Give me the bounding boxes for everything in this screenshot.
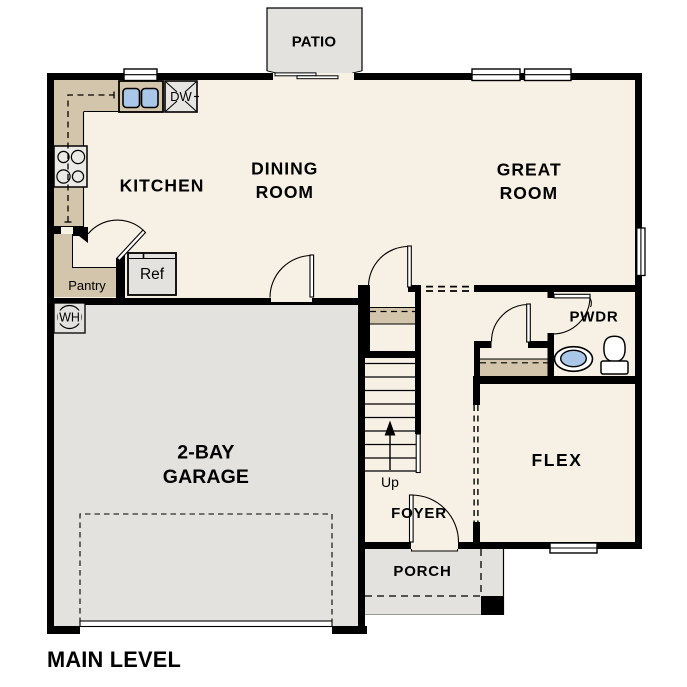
svg-text:DW: DW [170,89,192,104]
svg-text:Ref: Ref [140,266,165,283]
svg-text:KITCHEN: KITCHEN [120,176,205,196]
svg-text:PORCH: PORCH [393,563,451,580]
svg-text:DINING: DINING [251,159,318,179]
svg-text:PWDR: PWDR [569,308,618,325]
svg-text:PATIO: PATIO [292,34,337,51]
svg-text:WH: WH [59,311,80,325]
svg-text:FOYER: FOYER [391,505,447,522]
svg-text:2-BAY: 2-BAY [177,441,234,463]
svg-text:MAIN LEVEL: MAIN LEVEL [47,647,181,672]
svg-text:ROOM: ROOM [500,183,558,203]
svg-text:GARAGE: GARAGE [163,466,249,488]
svg-text:Pantry: Pantry [68,278,106,293]
svg-text:FLEX: FLEX [531,450,582,470]
svg-text:GREAT: GREAT [497,159,562,179]
svg-text:Up: Up [381,474,399,490]
svg-text:ROOM: ROOM [256,182,314,202]
